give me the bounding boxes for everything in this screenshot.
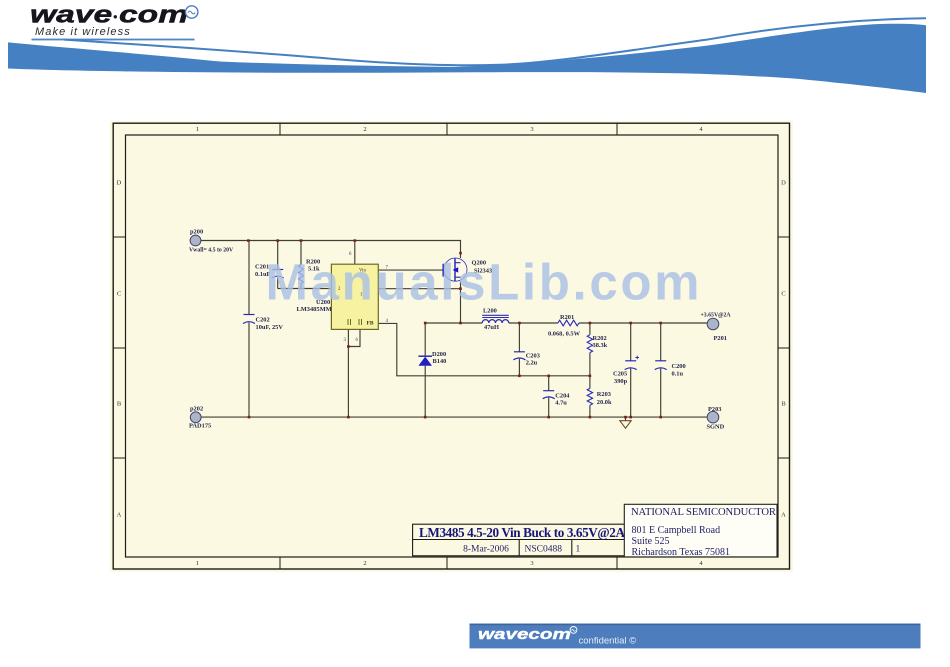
svg-text:D: D <box>117 180 122 187</box>
svg-text:NSC0488: NSC0488 <box>525 545 563 555</box>
svg-text:LM3485 4.5-20 Vin Buck to 3.65: LM3485 4.5-20 Vin Buck to 3.65V@2A <box>419 525 625 540</box>
svg-text:com: com <box>119 2 188 28</box>
svg-text:C200: C200 <box>672 363 686 370</box>
svg-text:R202: R202 <box>593 335 607 342</box>
svg-text:p200: p200 <box>190 229 203 236</box>
svg-text:FB: FB <box>367 321 374 327</box>
svg-text:38.3k: 38.3k <box>593 342 608 349</box>
svg-text:NATIONAL SEMICONDUCTOR: NATIONAL SEMICONDUCTOR <box>631 507 777 518</box>
svg-text:47uH: 47uH <box>484 324 499 331</box>
svg-text:Suite 525: Suite 525 <box>632 536 670 547</box>
svg-text:SGND: SGND <box>707 424 725 431</box>
svg-text:801 E Campbell Road: 801 E Campbell Road <box>632 525 721 536</box>
svg-text:3: 3 <box>530 560 533 567</box>
svg-text:Make it wireless: Make it wireless <box>35 26 131 38</box>
svg-text:0.068, 0.5W: 0.068, 0.5W <box>548 330 581 337</box>
svg-text:C204: C204 <box>555 393 570 400</box>
svg-text:B: B <box>117 401 122 408</box>
svg-text:C: C <box>781 291 785 298</box>
svg-text:B140: B140 <box>433 358 447 365</box>
svg-text:2.2u: 2.2u <box>526 359 538 366</box>
svg-text:ManualsLib.com: ManualsLib.com <box>266 253 700 310</box>
svg-text:P203: P203 <box>708 406 722 413</box>
svg-text:wave: wave <box>30 2 112 28</box>
svg-text:8-Mar-2006: 8-Mar-2006 <box>463 545 509 555</box>
svg-text:A: A <box>117 512 122 519</box>
svg-text:P201: P201 <box>714 335 728 342</box>
svg-text:PAD175: PAD175 <box>189 423 211 430</box>
svg-text:2: 2 <box>363 560 366 567</box>
svg-text:3: 3 <box>530 126 533 133</box>
svg-text:C205: C205 <box>613 371 627 378</box>
svg-text:C: C <box>117 291 121 298</box>
svg-text:C203: C203 <box>526 352 540 359</box>
svg-text:1: 1 <box>196 560 199 567</box>
svg-text:1: 1 <box>196 126 199 133</box>
svg-text:wavecom: wavecom <box>478 625 571 642</box>
svg-text:B: B <box>781 401 786 408</box>
svg-text:390p: 390p <box>614 378 628 385</box>
svg-text:2: 2 <box>363 126 366 133</box>
svg-text:A: A <box>781 512 786 519</box>
svg-text:Vwall= 4.5 to 20V: Vwall= 4.5 to 20V <box>189 248 234 254</box>
svg-text:+3.65V@2A: +3.65V@2A <box>701 313 732 319</box>
svg-text:C202: C202 <box>256 317 270 324</box>
svg-text:1: 1 <box>576 545 581 555</box>
svg-text:20.0k: 20.0k <box>597 399 612 406</box>
svg-text:R201: R201 <box>560 314 574 321</box>
svg-text:D: D <box>781 180 786 187</box>
svg-text:0.1u: 0.1u <box>672 370 684 377</box>
svg-text:Richardson Texas 75081: Richardson Texas 75081 <box>632 547 731 558</box>
svg-text:4.7u: 4.7u <box>555 400 567 407</box>
svg-text:R203: R203 <box>597 391 611 398</box>
svg-text:p202: p202 <box>190 405 203 412</box>
svg-text:confidential ©: confidential © <box>579 636 637 647</box>
svg-text:10uF, 25V: 10uF, 25V <box>256 324 284 331</box>
